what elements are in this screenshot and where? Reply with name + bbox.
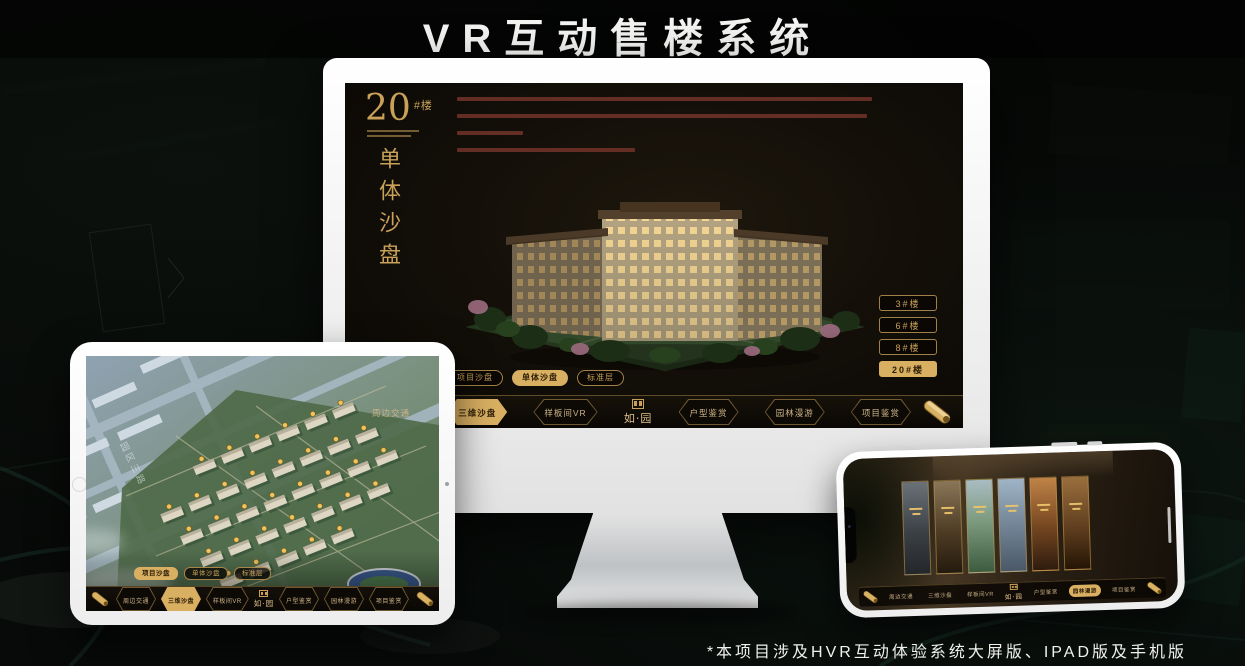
scene-card-1[interactable] — [901, 481, 931, 576]
phone-notch — [844, 507, 857, 563]
phone-nav-item-model-room-vr[interactable]: 样板间VR — [963, 587, 998, 600]
tablet-nav-item-model-room-vr[interactable]: 样板间VR — [206, 587, 249, 611]
scroll-icon[interactable] — [1146, 579, 1164, 597]
description-text-lines — [457, 97, 872, 165]
tablet-device: 园区三路 项目沙盘 单体沙盘 标准层 周边交通 三维沙盘 样板间VR — [70, 342, 455, 625]
floor-button-6[interactable]: 6#楼 — [879, 317, 937, 333]
tab-single-building[interactable]: 单体沙盘 — [512, 370, 568, 386]
scroll-icon[interactable] — [921, 396, 953, 428]
scene-card-3[interactable] — [965, 479, 995, 574]
section-title-vertical: 单体沙盘 — [371, 147, 403, 297]
phone-screen: 周边交通 三维沙盘 样板间VR 如·园 户型鉴赏 园林漫游 项目鉴赏 — [843, 449, 1179, 611]
nav-item-project-gallery[interactable]: 项目鉴赏 — [851, 399, 911, 425]
view-tab-group: 项目沙盘 单体沙盘 标准层 — [447, 370, 624, 386]
phone-nav-item-3d-sandtable[interactable]: 三维沙盘 — [924, 588, 956, 601]
phone-device: 周边交通 三维沙盘 样板间VR 如·园 户型鉴赏 园林漫游 项目鉴赏 — [835, 442, 1185, 619]
tablet-screen: 园区三路 项目沙盘 单体沙盘 标准层 周边交通 三维沙盘 样板间VR — [86, 356, 439, 611]
tablet-nav-item-surroundings[interactable]: 周边交通 — [116, 587, 156, 611]
tablet-tab-single-building[interactable]: 单体沙盘 — [184, 567, 228, 580]
footnote-text: *本项目涉及HVR互动体验系统大屏版、IPAD版及手机版 — [707, 638, 1187, 662]
hero-subtitle-lines — [365, 130, 433, 137]
seal-icon — [632, 399, 644, 409]
monitor-stand-shadow — [520, 604, 800, 622]
phone-nav-item-floorplans[interactable]: 户型鉴赏 — [1030, 585, 1062, 598]
scroll-icon[interactable] — [415, 589, 435, 609]
building-hero-block: 20 #楼 单体沙盘 — [365, 91, 433, 297]
tab-project-sandtable[interactable]: 项目沙盘 — [447, 370, 503, 386]
tablet-bottom-nav: 周边交通 三维沙盘 样板间VR 如·园 户型鉴赏 园林漫游 项目鉴赏 — [86, 586, 439, 611]
seal-icon — [259, 590, 268, 597]
seal-icon — [1009, 584, 1017, 590]
tablet-home-button[interactable] — [72, 477, 87, 492]
tablet-tab-standard-floor[interactable]: 标准层 — [234, 567, 271, 580]
phone-volume-button[interactable] — [1051, 442, 1077, 447]
scene-card-gallery — [901, 476, 1091, 576]
nav-item-model-room-vr[interactable]: 样板间VR — [533, 399, 597, 425]
floor-button-group: 3#楼 6#楼 8#楼 20#楼 — [879, 295, 937, 377]
floor-button-3[interactable]: 3#楼 — [879, 295, 937, 311]
scroll-icon[interactable] — [862, 588, 880, 606]
nav-item-floorplans[interactable]: 户型鉴赏 — [679, 399, 739, 425]
brand-logo: 如·园 — [624, 399, 653, 426]
page-title: VR互动售楼系统 — [0, 6, 1245, 64]
monitor-stand — [557, 513, 758, 608]
scene-card-5[interactable] — [1029, 477, 1059, 572]
building-number-suffix: #楼 — [414, 97, 433, 113]
phone-brand-logo: 如·园 — [1004, 584, 1023, 602]
tablet-nav-item-3d-sandtable[interactable]: 三维沙盘 — [161, 587, 201, 611]
building-number: 20 — [365, 91, 411, 127]
tablet-nav-item-project-gallery[interactable]: 项目鉴赏 — [369, 587, 409, 611]
phone-power-button[interactable] — [1087, 441, 1102, 445]
floor-button-20[interactable]: 20#楼 — [879, 361, 937, 377]
nav-item-3d-sandtable[interactable]: 三维沙盘 — [447, 399, 507, 425]
phone-nav-item-garden-tour[interactable]: 园林漫游 — [1069, 584, 1101, 597]
scene-card-6[interactable] — [1061, 476, 1091, 571]
phone-camera-dot — [848, 525, 851, 528]
tab-standard-floor[interactable]: 标准层 — [577, 370, 624, 386]
tablet-view-tab-group: 项目沙盘 单体沙盘 标准层 — [134, 567, 271, 580]
phone-nav-item-surroundings[interactable]: 周边交通 — [885, 589, 917, 602]
phone-bottom-nav: 周边交通 三维沙盘 样板间VR 如·园 户型鉴赏 园林漫游 项目鉴赏 — [859, 577, 1166, 607]
phone-nav-item-project-gallery[interactable]: 项目鉴赏 — [1108, 582, 1140, 595]
scene-card-4[interactable] — [997, 478, 1027, 573]
floor-button-8[interactable]: 8#楼 — [879, 339, 937, 355]
tablet-brand-logo: 如·园 — [254, 590, 274, 609]
building-3d-render — [460, 159, 870, 371]
tablet-tab-project-sandtable[interactable]: 项目沙盘 — [134, 567, 178, 580]
tablet-nav-item-floorplans[interactable]: 户型鉴赏 — [279, 587, 319, 611]
scroll-icon[interactable] — [90, 589, 110, 609]
tablet-nav-item-garden-tour[interactable]: 园林漫游 — [324, 587, 364, 611]
tablet-camera-dot — [445, 482, 449, 486]
scene-card-2[interactable] — [933, 480, 963, 575]
phone-home-indicator[interactable] — [1167, 507, 1171, 543]
page: VR互动售楼系统 20 #楼 单体沙盘 — [0, 0, 1245, 666]
nav-item-garden-tour[interactable]: 园林漫游 — [765, 399, 825, 425]
